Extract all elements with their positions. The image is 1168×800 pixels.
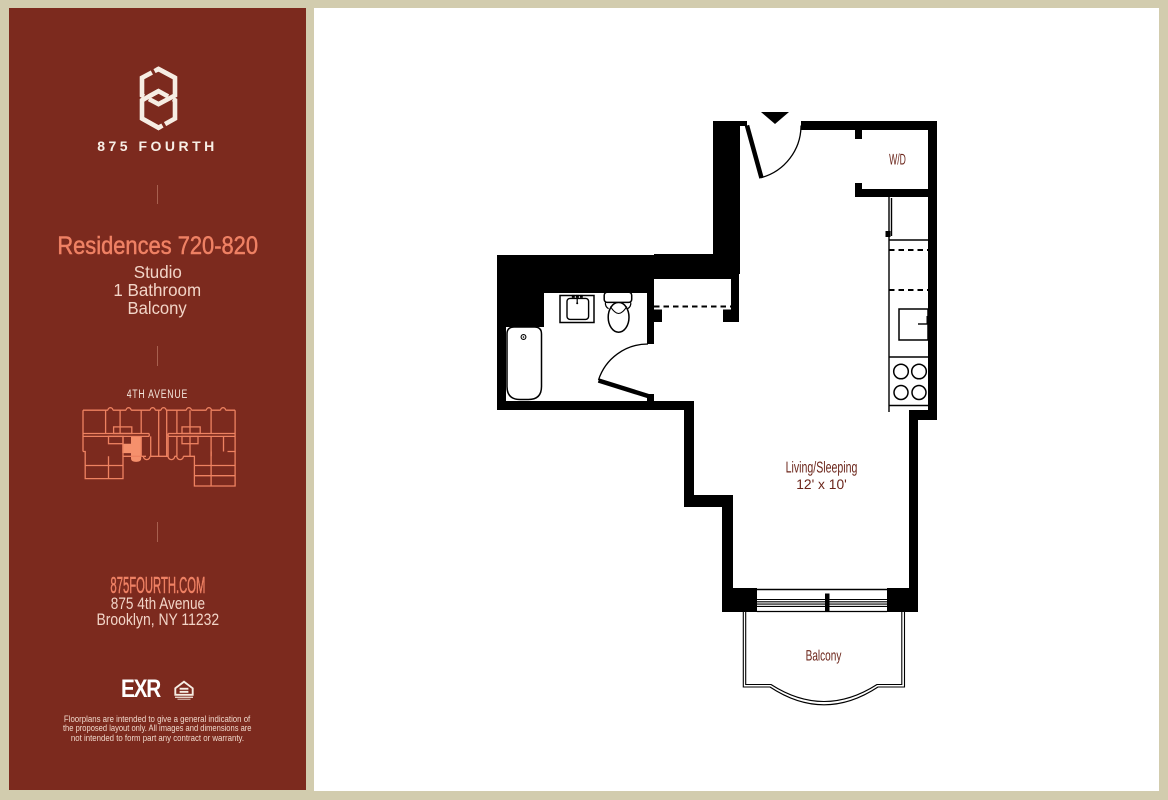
svg-text:12' x 10': 12' x 10'	[796, 477, 847, 492]
svg-text:W/D: W/D	[889, 152, 906, 169]
svg-text:Living/Sleeping: Living/Sleeping	[786, 460, 858, 477]
svg-text:Balcony: Balcony	[806, 648, 842, 665]
